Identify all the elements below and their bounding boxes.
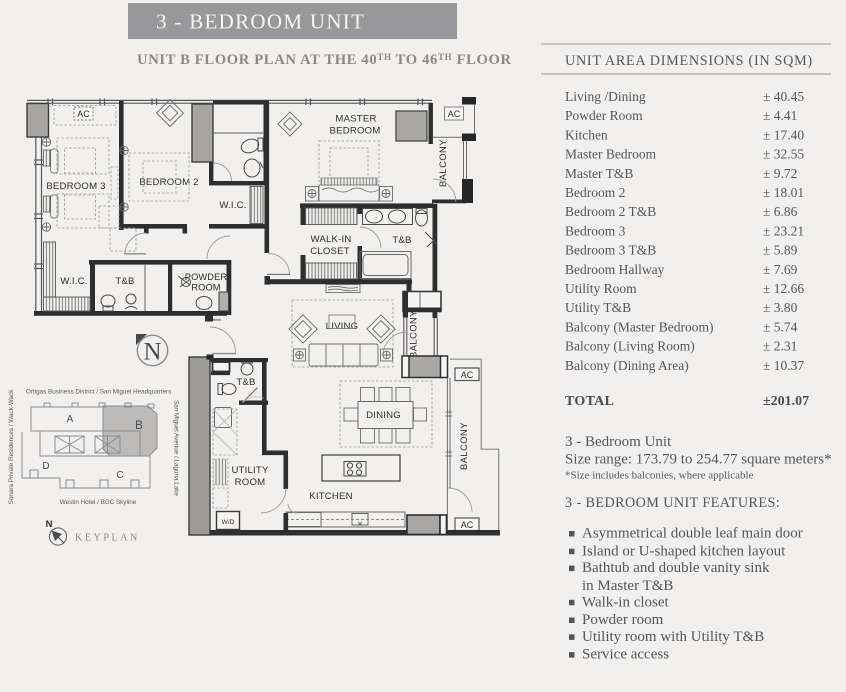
- svg-text:± 23.21: ± 23.21: [763, 223, 804, 238]
- svg-text:W.I.C.: W.I.C.: [219, 200, 246, 211]
- svg-text:± 17.40: ± 17.40: [763, 127, 804, 142]
- svg-text:UNIT AREA DIMENSIONS (IN SQM): UNIT AREA DIMENSIONS (IN SQM): [565, 53, 813, 69]
- svg-text:Balcony (Living Room): Balcony (Living Room): [565, 339, 695, 354]
- svg-text:C: C: [116, 470, 123, 481]
- svg-text:AC: AC: [461, 520, 474, 530]
- svg-text:Living /Dining: Living /Dining: [565, 89, 646, 104]
- svg-text:W/D: W/D: [222, 519, 235, 526]
- svg-text:3 - BEDROOM UNIT FEATURES:: 3 - BEDROOM UNIT FEATURES:: [565, 495, 780, 511]
- svg-text:ROOM: ROOM: [191, 283, 220, 293]
- svg-text:Kitchen: Kitchen: [565, 127, 608, 142]
- svg-text:BEDROOM 3: BEDROOM 3: [46, 181, 105, 192]
- svg-text:Utility Room: Utility Room: [565, 281, 637, 296]
- svg-text:KITCHEN: KITCHEN: [309, 491, 353, 502]
- svg-text:± 7.69: ± 7.69: [763, 262, 798, 277]
- svg-text:CLOSET: CLOSET: [310, 246, 350, 257]
- svg-text:UTILITY: UTILITY: [231, 465, 269, 476]
- svg-text:T&B: T&B: [392, 235, 411, 246]
- svg-text:N: N: [46, 519, 53, 530]
- svg-text:B: B: [135, 420, 143, 432]
- svg-text:Ortigas Business District / Sa: Ortigas Business District / San Miguel H…: [26, 389, 171, 396]
- svg-text:Bedroom 3: Bedroom 3: [565, 223, 626, 238]
- svg-text:AC: AC: [77, 109, 90, 119]
- svg-text:Walk-in closet: Walk-in closet: [582, 594, 670, 610]
- svg-text:± 12.66: ± 12.66: [763, 281, 804, 296]
- svg-text:*Size includes balconies, wher: *Size includes balconies, where applicab…: [565, 470, 754, 482]
- svg-text:± 2.31: ± 2.31: [763, 339, 797, 354]
- svg-text:± 5.89: ± 5.89: [763, 243, 798, 258]
- svg-text:3 - BEDROOM UNIT: 3 - BEDROOM UNIT: [156, 10, 365, 34]
- svg-text:BALCONY: BALCONY: [459, 422, 469, 470]
- svg-text:Bedroom 3 T&B: Bedroom 3 T&B: [565, 243, 656, 258]
- svg-text:Bedroom 2: Bedroom 2: [565, 185, 625, 200]
- svg-text:T&B: T&B: [115, 276, 134, 287]
- svg-text:Powder Room: Powder Room: [565, 108, 643, 123]
- svg-text:A: A: [67, 414, 74, 425]
- svg-text:Service access: Service access: [582, 647, 669, 663]
- svg-text:BEDROOM: BEDROOM: [330, 126, 381, 137]
- svg-text:Island or U-shaped kitchen lay: Island or U-shaped kitchen layout: [582, 543, 786, 559]
- svg-text:BEDROOM 2: BEDROOM 2: [139, 177, 198, 188]
- svg-text:± 40.45: ± 40.45: [763, 89, 804, 104]
- svg-text:Balcony (Dining Area): Balcony (Dining Area): [565, 358, 689, 373]
- svg-text:Bedroom 2 T&B: Bedroom 2 T&B: [565, 204, 656, 219]
- svg-text:3 - Bedroom Unit: 3 - Bedroom Unit: [565, 434, 672, 450]
- svg-text:AC: AC: [448, 109, 461, 119]
- svg-text:TOTAL: TOTAL: [565, 394, 614, 409]
- svg-text:± 6.86: ± 6.86: [763, 204, 798, 219]
- svg-text:± 3.80: ± 3.80: [763, 300, 798, 315]
- svg-text:Powder room: Powder room: [582, 612, 664, 628]
- svg-text:San Miguel Avenue / Laguna Lak: San Miguel Avenue / Laguna Lake: [173, 400, 180, 496]
- svg-text:Utility T&B: Utility T&B: [565, 300, 631, 315]
- svg-text:in Master T&B: in Master T&B: [582, 578, 673, 594]
- svg-text:± 18.01: ± 18.01: [763, 185, 804, 200]
- svg-text:BALCONY: BALCONY: [409, 310, 419, 358]
- svg-text:Utility room with Utility T&B: Utility room with Utility T&B: [582, 629, 764, 645]
- svg-text:Asymmetrical double leaf main: Asymmetrical double leaf main door: [582, 526, 803, 542]
- svg-text:Westin Hotel / BGC Skyline: Westin Hotel / BGC Skyline: [60, 499, 137, 506]
- svg-text:KEYPLAN: KEYPLAN: [75, 533, 140, 544]
- svg-text:Bathtub and double vanity sink: Bathtub and double vanity sink: [582, 560, 770, 576]
- svg-text:± 4.41: ± 4.41: [763, 108, 797, 123]
- svg-text:ROOM: ROOM: [235, 477, 266, 488]
- svg-text:D: D: [42, 461, 49, 472]
- svg-text:LIVING: LIVING: [326, 321, 359, 332]
- svg-text:Master Bedroom: Master Bedroom: [565, 147, 657, 162]
- svg-text:N: N: [143, 339, 161, 366]
- svg-text:± 9.72: ± 9.72: [763, 166, 797, 181]
- svg-text:W.I.C.: W.I.C.: [60, 276, 87, 287]
- svg-text:POWDER: POWDER: [185, 272, 228, 282]
- svg-text:± 5.74: ± 5.74: [763, 319, 798, 334]
- svg-text:DINING: DINING: [366, 410, 401, 421]
- svg-text:Sonara Private Residences / Wa: Sonara Private Residences / Wack-Wack: [8, 389, 15, 505]
- svg-text:Master T&B: Master T&B: [565, 166, 633, 181]
- svg-text:AC: AC: [461, 370, 474, 380]
- svg-text:UNIT B FLOOR PLAN AT THE 40TH: UNIT B FLOOR PLAN AT THE 40TH TO 46TH FL…: [137, 52, 512, 68]
- svg-text:± 32.55: ± 32.55: [763, 147, 804, 162]
- svg-text:T&B: T&B: [236, 377, 255, 388]
- svg-text:WALK-IN: WALK-IN: [310, 234, 351, 245]
- svg-text:Size range: 173.79 to 254.77 s: Size range: 173.79 to 254.77 square mete…: [565, 452, 832, 468]
- svg-text:Bedroom Hallway: Bedroom Hallway: [565, 262, 665, 277]
- svg-text:Balcony (Master Bedroom): Balcony (Master Bedroom): [565, 319, 713, 334]
- svg-text:± 10.37: ± 10.37: [763, 358, 804, 373]
- svg-text:±201.07: ±201.07: [763, 394, 809, 409]
- svg-text:MASTER: MASTER: [335, 114, 376, 125]
